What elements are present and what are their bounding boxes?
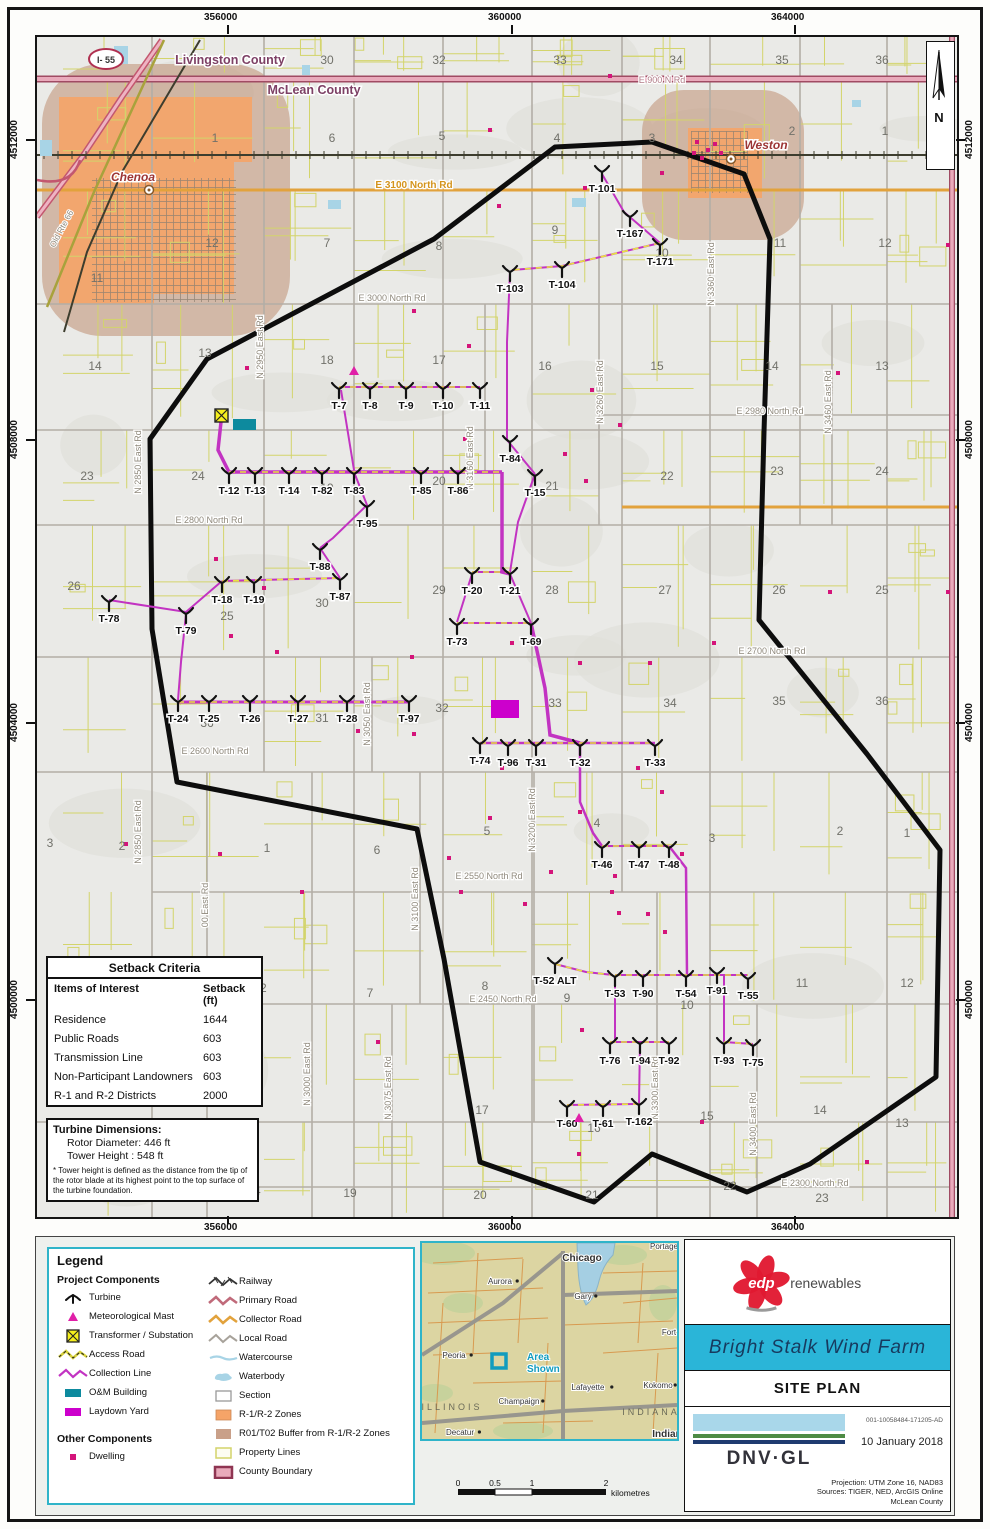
- bottom-panel: Legend Project Components TurbineMeteoro…: [35, 1236, 955, 1516]
- section-number: 31: [315, 711, 329, 725]
- dwelling: [663, 930, 667, 934]
- axis-tick: [956, 439, 965, 441]
- turbine-label: T-9: [398, 400, 413, 412]
- inset-city-label: Chicago: [562, 1253, 601, 1264]
- legend-other-header: Other Components: [57, 1433, 205, 1445]
- terrain-shading: [787, 668, 859, 718]
- legend-item: R-1/R-2 Zones: [207, 1405, 413, 1424]
- town-label: Chenoa: [111, 170, 155, 184]
- turbine-label: T-20: [461, 585, 482, 597]
- dwelling: [356, 729, 360, 733]
- dnv-bar-green: [693, 1434, 845, 1438]
- road-label: N 2850 East Rd: [133, 430, 143, 494]
- dwelling: [712, 641, 716, 645]
- section-number: 17: [475, 1103, 489, 1117]
- section-number: 10: [680, 998, 694, 1012]
- section-number: 23: [80, 469, 94, 483]
- inset-city-dot: [594, 1294, 597, 1297]
- dwelling: [563, 452, 567, 456]
- turbine-label: T-69: [520, 636, 541, 648]
- dwelling: [695, 140, 699, 144]
- legend-item: Waterbody: [207, 1367, 413, 1386]
- road-label: N 3200 East Rd: [527, 788, 537, 852]
- road-label: E 900 N Rd: [639, 75, 686, 85]
- section-number: 13: [875, 359, 889, 373]
- section-number: 15: [650, 359, 664, 373]
- setback-item: Residence: [54, 1014, 203, 1026]
- axis-top-label: 360000: [488, 12, 521, 23]
- edp-swoosh: [747, 1308, 777, 1310]
- collection-line-icon: [57, 1367, 89, 1381]
- section-number: 5: [439, 129, 446, 143]
- section-number: 32: [432, 53, 446, 67]
- dwelling: [245, 366, 249, 370]
- axis-left-label: 4500000: [9, 980, 20, 1019]
- turbine-label: T-76: [599, 1055, 620, 1067]
- section-number: 32: [435, 701, 449, 715]
- project-name-band: Bright Stalk Wind Farm: [685, 1324, 950, 1371]
- turbine-label: T-75: [742, 1057, 763, 1069]
- section-number: 20: [432, 474, 446, 488]
- axis-tick: [956, 999, 965, 1001]
- road-label: E 2600 North Rd: [181, 746, 248, 756]
- collector-road-icon: [207, 1313, 239, 1327]
- edp-wordmark: edp: [748, 1276, 774, 1292]
- road-label: E 2800 North Rd: [175, 515, 242, 525]
- turbine-label: T-46: [591, 859, 612, 871]
- legend-item: Meteorological Mast: [57, 1307, 205, 1326]
- turbine-label: T-74: [469, 755, 490, 767]
- area-shown-label: Area: [527, 1352, 550, 1363]
- legend-item-label: R01/T02 Buffer from R-1/R-2 Zones: [239, 1428, 390, 1439]
- local-road-icon: [207, 1332, 239, 1346]
- legend: Legend Project Components TurbineMeteoro…: [47, 1247, 415, 1505]
- terrain-shading: [742, 953, 884, 1019]
- setback-item: Transmission Line: [54, 1052, 203, 1064]
- dwelling: [549, 870, 553, 874]
- dwelling: [577, 1152, 581, 1156]
- turbine-label: T-48: [658, 859, 679, 871]
- turbine-label: T-11: [470, 400, 491, 412]
- legend-item-label: Property Lines: [239, 1447, 300, 1458]
- axis-right-label: 4508000: [964, 420, 975, 459]
- axis-top-label: 356000: [204, 12, 237, 23]
- axis-tick: [26, 139, 35, 141]
- turbine-label: T-97: [398, 713, 419, 725]
- area-shown-label: Shown: [527, 1364, 560, 1375]
- inset-map-svg: AreaShownChicagoPortageAuroraGaryFortPeo…: [422, 1243, 677, 1439]
- section-number: 1: [264, 841, 271, 855]
- legend-item-label: Primary Road: [239, 1295, 297, 1306]
- inset-city-label: Peoria: [442, 1351, 466, 1360]
- turbine-label: T-19: [243, 594, 264, 606]
- road-label: N 3360 East Rd: [706, 242, 716, 306]
- turbine-dimension-line: Tower Height : 548 ft: [53, 1150, 252, 1162]
- legend-item-label: Access Road: [89, 1349, 145, 1360]
- dwelling: [214, 557, 218, 561]
- legend-col1: TurbineMeteorological MastTransformer / …: [57, 1288, 205, 1466]
- road-label: N 3260 East Rd: [595, 360, 605, 424]
- legend-item-label: Collector Road: [239, 1314, 302, 1325]
- dwelling: [376, 1040, 380, 1044]
- legend-item: R01/T02 Buffer from R-1/R-2 Zones: [207, 1424, 413, 1443]
- section-number: 22: [723, 1179, 737, 1193]
- section-number: 1: [882, 124, 889, 138]
- scalebar-tick-label: 1: [530, 1478, 535, 1488]
- north-arrow: N: [926, 41, 955, 170]
- turbine-label: T-94: [629, 1055, 650, 1067]
- setback-value: 603: [203, 1052, 255, 1064]
- section-number: 25: [875, 583, 889, 597]
- inset-state-label: ILLINOIS: [422, 1402, 483, 1412]
- town-label: Weston: [744, 138, 787, 152]
- setback-item: Non-Participant Landowners: [54, 1071, 203, 1083]
- turbine-dimension-line: Rotor Diameter: 446 ft: [53, 1137, 252, 1149]
- section-number: 15: [700, 1109, 714, 1123]
- turbine-label: T-12: [218, 485, 239, 497]
- dwelling: [946, 590, 950, 594]
- turbine-label: T-78: [98, 613, 119, 625]
- inset-city-label: Fort: [662, 1328, 677, 1337]
- axis-tick: [794, 25, 796, 34]
- road-label: N 3075 East Rd: [383, 1056, 393, 1120]
- laydown-yard-icon: [57, 1405, 89, 1419]
- setback-row: Non-Participant Landowners603: [48, 1067, 261, 1086]
- svg-text:N: N: [934, 110, 943, 125]
- section-number: 26: [67, 579, 81, 593]
- town-marker-dot: [148, 189, 151, 192]
- turbine-label: T-95: [356, 518, 377, 530]
- dwelling: [580, 1028, 584, 1032]
- legend-item: Property Lines: [207, 1443, 413, 1462]
- dwelling: [610, 890, 614, 894]
- dwelling: [946, 243, 950, 247]
- dwelling: [412, 309, 416, 313]
- section-number: 34: [669, 53, 683, 67]
- dwelling: [218, 852, 222, 856]
- scalebar-segment: [495, 1489, 532, 1495]
- section-number: 14: [765, 359, 779, 373]
- turbine-label: T-83: [343, 485, 364, 497]
- axis-top-label: 364000: [771, 12, 804, 23]
- dwelling: [680, 852, 684, 856]
- setback-header-item: Items of Interest: [54, 983, 203, 1007]
- section-number: 14: [813, 1103, 827, 1117]
- map-source-line: Projection: UTM Zone 16, NAD83: [817, 1478, 943, 1488]
- dwelling: [262, 586, 266, 590]
- road-label: N 3100 East Rd: [410, 867, 420, 931]
- title-block: edprenewables Bright Stalk Wind Farm SIT…: [684, 1239, 951, 1512]
- waterbody-icon: [207, 1370, 239, 1384]
- north-arrow-glyph: N: [927, 42, 951, 166]
- turbine-dimensions-box: Turbine Dimensions: Rotor Diameter: 446 …: [46, 1118, 259, 1202]
- section-number: 2: [837, 824, 844, 838]
- setback-value: 603: [203, 1033, 255, 1045]
- section-number: 21: [545, 479, 559, 493]
- axis-bottom-label: 356000: [204, 1222, 237, 1233]
- scale-bar-svg: 00.512kilometres: [441, 1475, 711, 1509]
- road-label: N 2850 East Rd: [133, 800, 143, 864]
- section-number: 17: [432, 353, 446, 367]
- inset-city-label: Indian: [652, 1429, 677, 1439]
- legend-item-label: O&M Building: [89, 1387, 147, 1398]
- turbine-label: T-25: [198, 713, 219, 725]
- dwelling: [700, 156, 704, 160]
- setback-title: Setback Criteria: [48, 958, 261, 979]
- site-plan-page: 3032333435361654321111278910111213141817…: [0, 0, 990, 1529]
- turbine-icon: [57, 1291, 89, 1305]
- section-number: 13: [198, 346, 212, 360]
- road-label: E 3100 North Rd: [375, 180, 452, 191]
- turbine-label: T-60: [556, 1118, 577, 1130]
- section-number: 2: [119, 839, 126, 853]
- setback-row: Public Roads603: [48, 1029, 261, 1048]
- om-building: [233, 419, 256, 430]
- axis-tick: [26, 999, 35, 1001]
- section-number: 19: [343, 1186, 357, 1200]
- waterbody: [40, 140, 52, 156]
- section-number: 5: [484, 824, 491, 838]
- turbine-label: T-32: [569, 757, 590, 769]
- inset-city-dot: [478, 1430, 481, 1433]
- legend-item-label: Transformer / Substation: [89, 1330, 193, 1341]
- dwelling: [412, 732, 416, 736]
- section-number: 13: [895, 1116, 909, 1130]
- section-number: 9: [552, 223, 559, 237]
- dwelling: [613, 874, 617, 878]
- primary-road-icon: [207, 1294, 239, 1308]
- dnv-gl-wordmark: DNV·GL: [693, 1448, 845, 1470]
- section-number: 16: [538, 359, 552, 373]
- dwelling: [467, 344, 471, 348]
- section-number: 6: [329, 131, 336, 145]
- dwelling: [583, 186, 587, 190]
- turbine-label: T-86: [447, 485, 468, 497]
- axis-tick: [794, 1216, 796, 1224]
- turbine-label: T-104: [549, 279, 576, 291]
- terrain-shading: [822, 320, 925, 366]
- section-number: 4: [554, 131, 561, 145]
- turbine-label: T-103: [497, 283, 524, 295]
- setback-value: 2000: [203, 1090, 255, 1102]
- dwelling: [447, 856, 451, 860]
- map-source-line: Sources: TIGER, NED, ArcGIS Online: [817, 1487, 943, 1497]
- section-number: 36: [875, 53, 889, 67]
- axis-left-label: 4512000: [9, 120, 20, 159]
- section-number: 35: [775, 53, 789, 67]
- section-number: 3: [709, 831, 716, 845]
- town-marker: [727, 155, 736, 164]
- turbine-label: T-87: [329, 591, 350, 603]
- inset-city-dot: [541, 1399, 544, 1402]
- legend-item: O&M Building: [57, 1383, 205, 1402]
- terrain-shading: [382, 239, 523, 279]
- axis-tick: [956, 139, 965, 141]
- scalebar-tick-label: 0: [456, 1478, 461, 1488]
- road-label: E 3000 North Rd: [358, 293, 425, 303]
- legend-item: Section: [207, 1386, 413, 1405]
- legend-item: Collector Road: [207, 1310, 413, 1329]
- setback-row: R-1 and R-2 Districts2000: [48, 1086, 261, 1105]
- section-number: 7: [367, 986, 374, 1000]
- axis-right-label: 4512000: [964, 120, 975, 159]
- dwelling: [488, 816, 492, 820]
- inset-city-label: Lafayette: [572, 1383, 605, 1392]
- laydown-yard: [491, 700, 519, 718]
- town-marker: [145, 186, 154, 195]
- turbine-label: T-13: [244, 485, 265, 497]
- document-number: 001-10058484-171205-AD: [866, 1417, 943, 1424]
- turbine-label: T-90: [632, 988, 653, 1000]
- i55-shield-label: I- 55: [97, 55, 115, 65]
- setback-criteria-table: Setback Criteria Items of InterestSetbac…: [46, 956, 263, 1107]
- dwelling: [618, 423, 622, 427]
- turbine-label: T-91: [706, 985, 727, 997]
- dwelling: [828, 590, 832, 594]
- road-label: E 2550 North Rd: [455, 871, 522, 881]
- road-label: N 2950 East Rd: [255, 315, 265, 379]
- project-name: Bright Stalk Wind Farm: [709, 1337, 926, 1359]
- setback-item: Public Roads: [54, 1033, 203, 1045]
- turbine-label: T-79: [175, 625, 196, 637]
- section-number: 1: [212, 131, 219, 145]
- legend-item: Collection Line: [57, 1364, 205, 1383]
- dwelling: [617, 911, 621, 915]
- turbine-label: T-28: [336, 713, 357, 725]
- axis-right-label: 4504000: [964, 703, 975, 742]
- setback-rows: Items of InterestSetback (ft)Residence16…: [48, 979, 261, 1105]
- setback-value: 1644: [203, 1014, 255, 1026]
- section-number: 8: [436, 239, 443, 253]
- turbine-label: T-82: [311, 485, 332, 497]
- scalebar-segment: [532, 1489, 606, 1495]
- turbine-label: T-10: [432, 400, 453, 412]
- turbine-label: T-167: [617, 228, 644, 240]
- waterbody: [328, 200, 341, 209]
- section-number: 11: [91, 271, 104, 285]
- dwelling: [692, 151, 696, 155]
- turbine-label: T-162: [626, 1116, 653, 1128]
- dwelling: [836, 371, 840, 375]
- setback-row: Transmission Line603: [48, 1048, 261, 1067]
- turbine-label: T-21: [499, 585, 520, 597]
- dnv-bar-lightblue: [693, 1414, 845, 1431]
- axis-tick: [26, 439, 35, 441]
- dwelling: [660, 171, 664, 175]
- section-number: 8: [482, 979, 489, 993]
- section-number: 14: [88, 359, 102, 373]
- dwelling: [410, 655, 414, 659]
- property-lines-icon: [207, 1446, 239, 1460]
- section-number: 24: [875, 464, 889, 478]
- legend-item: Watercourse: [207, 1348, 413, 1367]
- dwelling: [608, 74, 612, 78]
- drawing-title-text: SITE PLAN: [774, 1380, 861, 1397]
- road-label: E 2980 North Rd: [736, 406, 803, 416]
- axis-bottom-label: 364000: [771, 1222, 804, 1233]
- turbine-label: T-84: [499, 453, 520, 465]
- inset-state-label: INDIANA: [622, 1407, 677, 1417]
- dwelling: [488, 128, 492, 132]
- edp-renewables-logo: edprenewables: [685, 1240, 950, 1324]
- section-number: 1: [904, 826, 911, 840]
- dwelling: [497, 204, 501, 208]
- section-number: 21: [585, 1188, 599, 1202]
- road-label: N 3400 East Rd: [748, 1092, 758, 1156]
- section-number: 11: [774, 236, 787, 250]
- section-number: 27: [658, 583, 672, 597]
- section-number: 35: [772, 694, 786, 708]
- turbine-label: T-24: [167, 713, 188, 725]
- dwelling: [648, 661, 652, 665]
- waterbody: [852, 100, 861, 107]
- section-number: 18: [320, 353, 334, 367]
- turbine-dimensions-lines: Rotor Diameter: 446 ftTower Height : 548…: [53, 1137, 252, 1162]
- turbine-label: T-88: [309, 561, 330, 573]
- road-label: N 3460 East Rd: [823, 370, 833, 434]
- dwelling: [578, 661, 582, 665]
- dwelling: [865, 1160, 869, 1164]
- terrain-shading: [506, 97, 652, 159]
- terrain-shading: [574, 813, 649, 848]
- turbine-label: T-73: [446, 636, 467, 648]
- turbine-label: T-53: [604, 988, 625, 1000]
- turbine-label: T-61: [592, 1118, 613, 1130]
- waterbody: [572, 198, 586, 207]
- road-label: N 3050 East Rd: [362, 682, 372, 746]
- town-marker-dot: [730, 158, 733, 161]
- section-number: 9: [564, 991, 571, 1005]
- legend-item-label: R-1/R-2 Zones: [239, 1409, 301, 1420]
- road-label: E 2300 North Rd: [781, 1178, 848, 1188]
- access-road-icon: [57, 1348, 89, 1362]
- scale-bar: 00.512kilometres: [441, 1475, 711, 1509]
- section-number: 33: [548, 696, 562, 710]
- dwelling: [523, 902, 527, 906]
- section-number: 2: [789, 124, 796, 138]
- dwelling-icon: [57, 1450, 89, 1464]
- inset-city-label: Portage: [650, 1243, 677, 1251]
- turbine-label: T-14: [278, 485, 299, 497]
- legend-col2: RailwayPrimary RoadCollector RoadLocal R…: [207, 1272, 413, 1481]
- turbine-dimensions-title: Turbine Dimensions:: [53, 1124, 252, 1136]
- setback-item: R-1 and R-2 Districts: [54, 1090, 203, 1102]
- section-number: 11: [796, 976, 809, 990]
- section-number: 3: [47, 836, 54, 850]
- legend-item: Transformer / Substation: [57, 1326, 205, 1345]
- legend-item: Laydown Yard: [57, 1402, 205, 1421]
- section-number: 12: [878, 236, 892, 250]
- legend-item-label: Railway: [239, 1276, 272, 1287]
- road-label: E 2450 North Rd: [469, 994, 536, 1004]
- weston-street-grid: [691, 131, 748, 193]
- section-number: 20: [473, 1188, 487, 1202]
- dnv-gl-logo: DNV·GL: [693, 1414, 845, 1470]
- dwelling: [459, 890, 463, 894]
- legend-item-label: Local Road: [239, 1333, 287, 1344]
- met-mast-icon: [57, 1310, 89, 1324]
- turbine-label: T-27: [287, 713, 308, 725]
- turbine-label: T-7: [331, 400, 346, 412]
- turbine-label: T-47: [628, 859, 649, 871]
- section-number: 29: [432, 583, 446, 597]
- axis-left-label: 4508000: [9, 420, 20, 459]
- setback-value: 603: [203, 1071, 255, 1083]
- dwelling: [578, 810, 582, 814]
- section-number: 23: [770, 464, 784, 478]
- turbine-label: T-101: [589, 183, 616, 195]
- legend-item-label: County Boundary: [239, 1466, 312, 1477]
